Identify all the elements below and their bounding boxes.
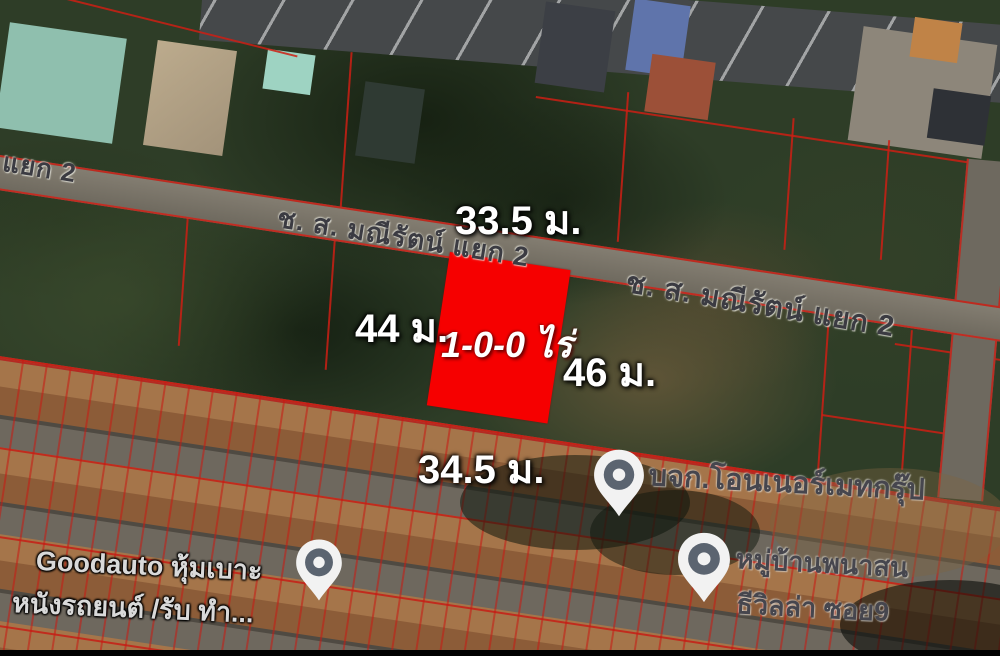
poi-goodauto: Goodauto หุ้มเบาะ หนังรถยนต์ /รับ ทำ... [11,538,263,635]
map-pin-icon[interactable] [293,537,345,603]
dimension-bottom: 34.5 ม. [418,437,544,501]
map-pin-icon[interactable] [590,447,648,519]
teal-roof-building [0,22,127,143]
dark-structure [927,88,991,146]
plot-area-label: 1-0-0 ไร่ [441,316,572,373]
poi-village-line2: ธีวิลล่า ซอย9 [735,582,907,634]
tan-roof-house [143,40,237,156]
dark-roof-house [535,2,616,93]
poi-village-line1: หมู่บ้านพนาสน [735,537,910,589]
poi-village: หมู่บ้านพนาสน ธีวิลล่า ซอย9 [732,537,909,634]
dimension-left: 44 ม. [355,296,448,360]
teal-shed [262,49,315,95]
dark-roof-building [355,81,425,164]
orange-roof-house [909,17,962,63]
dimension-right: 46 ม. [563,340,656,404]
bottom-black-bar [0,650,1000,656]
red-roof-house [644,54,715,120]
satellite-land-plot-map: 1-0-0 ไร่ 33.5 ม. 44 ม. 46 ม. 34.5 ม. แย… [0,0,1000,656]
map-pin-icon[interactable] [674,530,734,605]
